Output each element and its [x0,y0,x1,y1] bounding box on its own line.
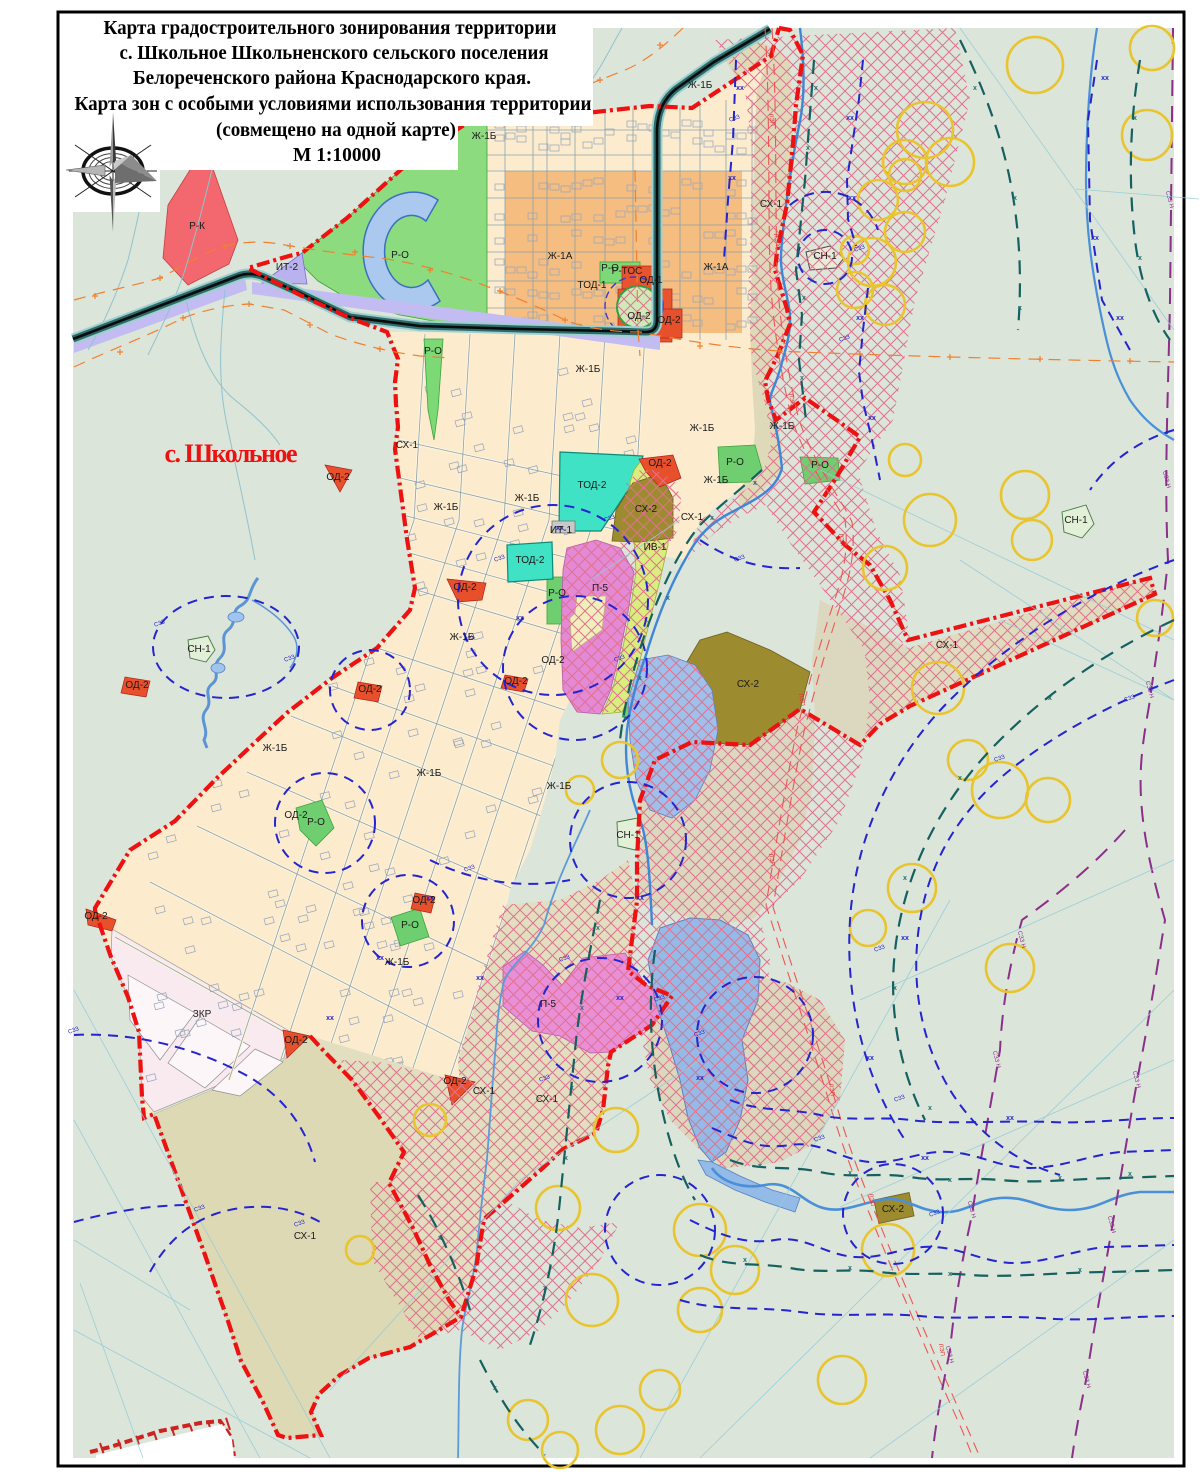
svg-text:x: x [814,85,818,92]
svg-text:xx: xx [1101,75,1109,82]
svg-text:ОД-2: ОД-2 [84,911,108,922]
svg-text:xx: xx [326,1015,334,1022]
svg-text:(совмещено на одной карте): (совмещено на одной карте) [216,119,456,141]
svg-text:Р-О: Р-О [811,460,829,471]
svg-text:Карта зон с особыми условиями: Карта зон с особыми условиями использова… [75,93,592,115]
svg-text:x: x [903,875,907,882]
svg-text:x: x [798,225,802,232]
svg-text:ОД-2: ОД-2 [284,810,308,821]
svg-text:x: x [1018,305,1022,312]
svg-text:xx: xx [696,1075,704,1082]
svg-text:СХ-1: СХ-1 [473,1086,496,1097]
svg-text:с. Школьное: с. Школьное [165,439,298,468]
svg-text:xx: xx [516,615,524,622]
svg-text:Ж-1А: Ж-1А [704,262,729,273]
svg-text:x: x [973,85,977,92]
svg-text:СН-1: СН-1 [187,644,211,655]
svg-text:Ж-1Б: Ж-1Б [704,475,729,486]
svg-text:Р-О: Р-О [424,346,442,357]
svg-text:М 1:10000: М 1:10000 [293,144,381,166]
svg-text:ИВ-1: ИВ-1 [644,542,667,553]
svg-text:СХ-1: СХ-1 [536,1094,559,1105]
svg-text:ОД-2: ОД-2 [453,582,477,593]
svg-text:ОД-2: ОД-2 [541,655,565,666]
svg-text:Р-О: Р-О [391,250,409,261]
svg-text:Ж-1Б: Ж-1Б [688,80,713,91]
svg-text:x: x [1058,1175,1062,1182]
svg-text:Ж-1Б: Ж-1Б [263,743,288,754]
svg-text:x: x [1013,195,1017,202]
svg-text:Р-О: Р-О [726,457,744,468]
svg-text:ОД-2: ОД-2 [627,311,651,322]
svg-text:Ж-1Б: Ж-1Б [417,768,442,779]
svg-text:x: x [564,1155,568,1162]
svg-text:x: x [710,515,714,522]
svg-text:x: x [958,775,962,782]
svg-text:П-5: П-5 [592,583,609,594]
svg-text:Карта градостроительного зонир: Карта градостроительного зонирования тер… [104,17,557,39]
svg-text:x: x [743,1257,747,1264]
svg-text:x: x [893,985,897,992]
svg-text:П-5: П-5 [540,999,557,1010]
svg-text:x: x [638,675,642,682]
svg-text:x: x [580,1005,584,1012]
svg-text:x: x [800,375,804,382]
svg-text:Белореченского района Краснода: Белореченского района Краснодарского кра… [133,67,531,89]
svg-text:ТОД-2: ТОД-2 [516,555,545,566]
svg-text:x: x [493,1385,497,1392]
svg-text:xx: xx [1116,315,1124,322]
svg-text:Ж-1Б: Ж-1Б [450,632,475,643]
svg-text:x: x [543,1285,547,1292]
svg-text:с. Школьное Школьненского сель: с. Школьное Школьненского сельского посе… [120,42,549,64]
svg-text:xx: xx [921,1155,929,1162]
svg-text:x: x [596,925,600,932]
svg-text:СН-1: СН-1 [813,251,837,262]
svg-text:ЗКР: ЗКР [193,1009,212,1020]
svg-text:xx: xx [1006,1115,1014,1122]
svg-text:x: x [1048,695,1052,702]
svg-text:x: x [623,715,627,722]
svg-text:xx: xx [636,895,644,902]
svg-text:Ж-1Б: Ж-1Б [434,502,459,513]
svg-text:x: x [1128,1171,1132,1178]
svg-text:ИТ-1: ИТ-1 [550,525,573,536]
svg-text:xx: xx [901,935,909,942]
svg-text:Ж-1Б: Ж-1Б [547,781,572,792]
svg-text:СХ-1: СХ-1 [760,199,783,210]
svg-text:x: x [1138,255,1142,262]
svg-text:ОД-2: ОД-2 [125,680,149,691]
svg-text:Р-О: Р-О [307,817,325,828]
svg-text:Р-О: Р-О [601,263,619,274]
svg-text:xx: xx [736,85,744,92]
svg-text:x: x [948,1177,952,1184]
svg-text:СХ-1: СХ-1 [936,640,959,651]
svg-text:xx: xx [868,415,876,422]
svg-text:xx: xx [476,975,484,982]
svg-text:Ж-1Б: Ж-1Б [472,131,497,142]
svg-text:xx: xx [376,955,384,962]
svg-text:СХ-2: СХ-2 [882,1204,905,1215]
svg-text:ТОД-2: ТОД-2 [578,480,607,491]
svg-text:СХ-1: СХ-1 [294,1231,317,1242]
svg-text:xx: xx [728,175,736,182]
svg-text:x: x [758,1163,762,1170]
svg-text:СХ-2: СХ-2 [635,504,658,515]
svg-text:x: x [848,1170,852,1177]
svg-text:x: x [753,480,757,487]
svg-text:x: x [806,145,810,152]
svg-text:Р-О: Р-О [401,920,419,931]
svg-text:xx: xx [866,1055,874,1062]
svg-text:ОД-2: ОД-2 [284,1035,308,1046]
svg-text:ОД-2: ОД-2 [358,684,382,695]
svg-text:xx: xx [846,115,854,122]
svg-text:x: x [928,1105,932,1112]
svg-text:ОД-2: ОД-2 [504,676,528,687]
svg-text:ОД-2: ОД-2 [443,1076,467,1087]
svg-text:xx: xx [848,195,856,202]
svg-text:ОД-2: ОД-2 [657,315,681,326]
svg-text:Ж-1Б: Ж-1Б [770,421,795,432]
svg-text:ИТ-2: ИТ-2 [276,262,299,273]
svg-text:Ж-1Б: Ж-1Б [576,364,601,375]
svg-text:ОД-2: ОД-2 [412,895,436,906]
svg-text:СН-1: СН-1 [1064,515,1088,526]
svg-text:Ж-1Б: Ж-1Б [385,957,410,968]
svg-text:x: x [1078,1267,1082,1274]
svg-text:x: x [438,1235,442,1242]
svg-text:СХ-1: СХ-1 [396,440,419,451]
svg-text:СХ-1: СХ-1 [681,512,704,523]
svg-text:СН-1: СН-1 [616,830,640,841]
svg-text:Ж-1А: Ж-1А [548,251,573,262]
svg-text:ОД-1: ОД-1 [639,275,663,286]
svg-text:Ж-1Б: Ж-1Б [690,423,715,434]
svg-text:СХ-2: СХ-2 [737,679,760,690]
svg-text:Р-О: Р-О [548,588,566,599]
svg-text:x: x [1133,115,1137,122]
svg-text:x: x [666,595,670,602]
svg-text:x: x [948,1271,952,1278]
svg-text:x: x [570,1085,574,1092]
svg-text:xx: xx [1091,235,1099,242]
svg-text:x: x [848,1265,852,1272]
svg-text:ОД-2: ОД-2 [648,458,672,469]
svg-text:x: x [802,295,806,302]
svg-text:xx: xx [856,315,864,322]
svg-text:Р-К: Р-К [189,221,205,232]
svg-text:ОД-2: ОД-2 [326,472,350,483]
svg-text:xx: xx [616,995,624,1002]
svg-text:ТОД-1: ТОД-1 [578,280,607,291]
svg-text:Ж-1Б: Ж-1Б [515,493,540,504]
